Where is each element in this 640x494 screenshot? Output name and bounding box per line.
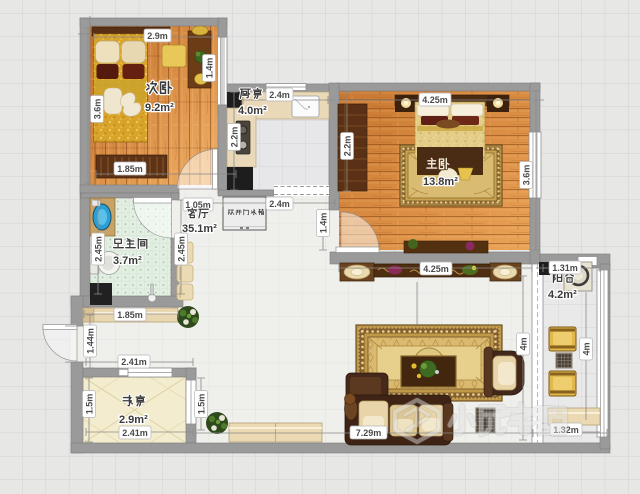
svg-text:2.45m: 2.45m: [94, 236, 104, 262]
svg-text:35.1m²: 35.1m²: [182, 223, 217, 235]
svg-text:1.5m: 1.5m: [197, 394, 207, 415]
svg-text:4.2m²: 4.2m²: [548, 289, 577, 301]
svg-text:2.4m: 2.4m: [269, 199, 290, 209]
svg-text:4.0m²: 4.0m²: [238, 105, 267, 117]
svg-text:9.2m²: 9.2m²: [145, 102, 174, 114]
svg-text:4m: 4m: [582, 342, 592, 355]
svg-text:3.6m: 3.6m: [522, 165, 532, 186]
svg-text:7.29m: 7.29m: [356, 428, 382, 438]
svg-text:3.7m²: 3.7m²: [113, 255, 142, 267]
svg-text:1.85m: 1.85m: [117, 310, 143, 320]
svg-text:13.8m²: 13.8m²: [423, 176, 458, 188]
svg-text:2.9m: 2.9m: [147, 31, 168, 41]
svg-text:1.4m: 1.4m: [319, 213, 329, 234]
svg-text:4m: 4m: [519, 337, 529, 350]
svg-text:4.25m: 4.25m: [422, 95, 448, 105]
svg-text:1.4m: 1.4m: [205, 58, 215, 79]
svg-text:2.2m: 2.2m: [230, 127, 240, 148]
svg-text:2.45m: 2.45m: [177, 236, 187, 262]
svg-text:2.2m: 2.2m: [343, 136, 353, 157]
svg-text:2.41m: 2.41m: [122, 428, 148, 438]
svg-text:4.25m: 4.25m: [423, 264, 449, 274]
svg-text:2.9m²: 2.9m²: [119, 414, 148, 426]
svg-text:2.41m: 2.41m: [121, 357, 147, 367]
svg-text:1.5m: 1.5m: [85, 394, 95, 415]
svg-text:1.85m: 1.85m: [117, 164, 143, 174]
svg-text:1.44m: 1.44m: [86, 328, 96, 354]
svg-text:3.6m: 3.6m: [93, 99, 103, 120]
svg-text:1.31m: 1.31m: [552, 263, 578, 273]
svg-text:2.4m: 2.4m: [269, 90, 290, 100]
